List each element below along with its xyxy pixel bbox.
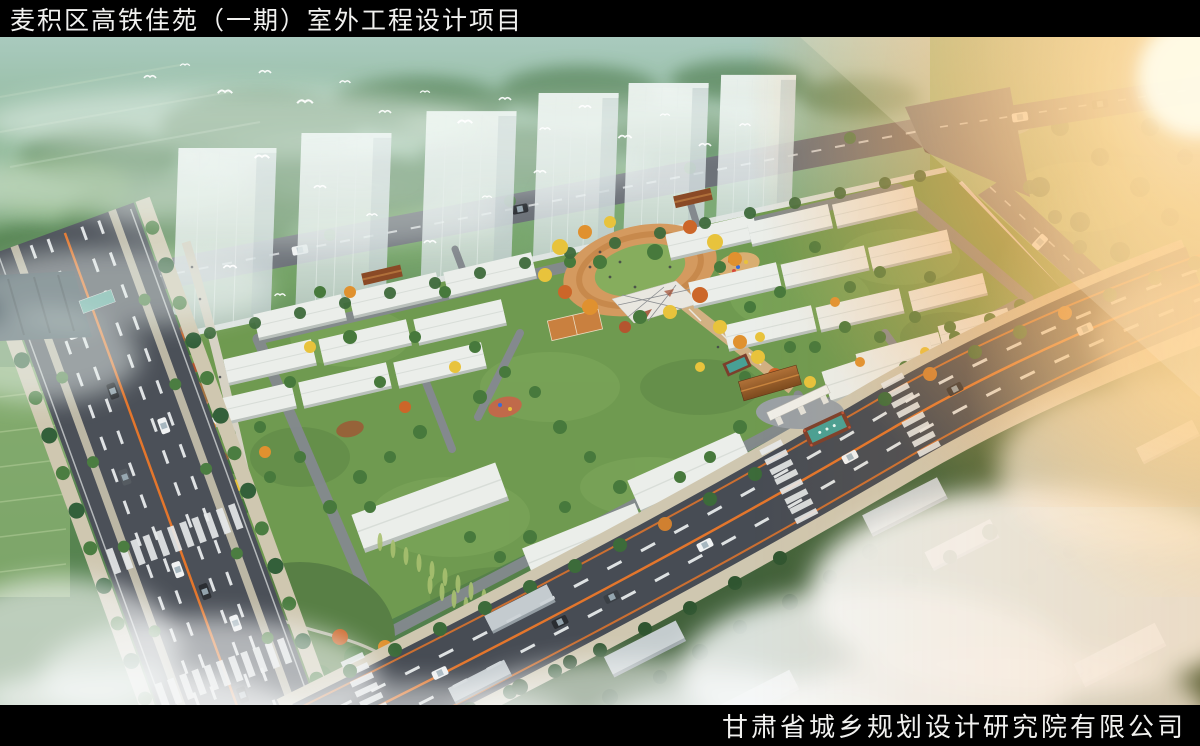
rendering-board: 麦积区高铁佳苑（一期）室外工程设计项目 <box>0 0 1200 746</box>
aerial-rendering <box>0 37 1200 705</box>
footer-bar: 甘肃省城乡规划设计研究院有限公司 <box>0 705 1200 746</box>
project-title: 麦积区高铁佳苑（一期）室外工程设计项目 <box>10 1 523 37</box>
title-bar: 麦积区高铁佳苑（一期）室外工程设计项目 <box>0 0 1200 37</box>
company-name: 甘肃省城乡规划设计研究院有限公司 <box>722 707 1186 744</box>
